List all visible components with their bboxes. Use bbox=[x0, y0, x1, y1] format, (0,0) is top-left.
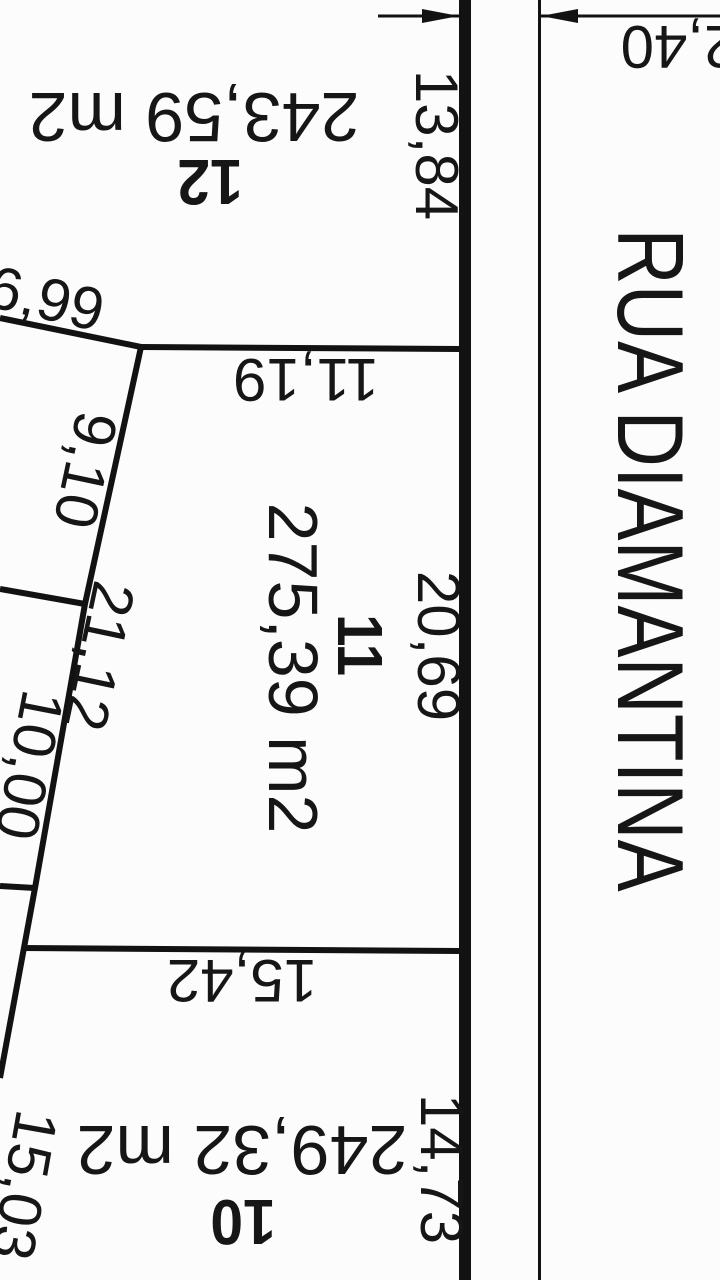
arrow-left-icon bbox=[541, 9, 578, 23]
lot11-area-label: 275,39 m2 bbox=[258, 503, 328, 834]
survey-plan: RUA DIAMANTINA 2,40 243,59 m2 12 13,84 1… bbox=[0, 0, 720, 1280]
lot10-number-label: 10 bbox=[210, 1190, 275, 1254]
lot11-number-label: 11 bbox=[328, 614, 392, 676]
neighbor2-neighbor3-boundary-line bbox=[0, 886, 35, 888]
lot12-lot11-boundary-dimension: 11,19 bbox=[233, 349, 379, 409]
lot10-area-label: 249,32 m2 bbox=[77, 1115, 408, 1185]
lot12-frontage-dimension: 13,84 bbox=[406, 70, 466, 220]
lot11-lot10-boundary-dimension: 15,42 bbox=[167, 950, 317, 1010]
lot10-frontage-dimension: 14,73 bbox=[411, 1094, 471, 1244]
lot12-number-label: 12 bbox=[177, 150, 242, 214]
arrow-right-icon bbox=[422, 9, 459, 23]
setback-dimension-label: 2,40 bbox=[621, 16, 720, 76]
dimension-arrowheads bbox=[422, 9, 578, 23]
street-name-label: RUA DIAMANTINA bbox=[603, 228, 697, 891]
lot12-area-label: 243,59 m2 bbox=[29, 82, 360, 152]
lot11-frontage-dimension: 20,69 bbox=[408, 571, 468, 721]
neighbor1-neighbor2-boundary-line bbox=[0, 589, 85, 604]
